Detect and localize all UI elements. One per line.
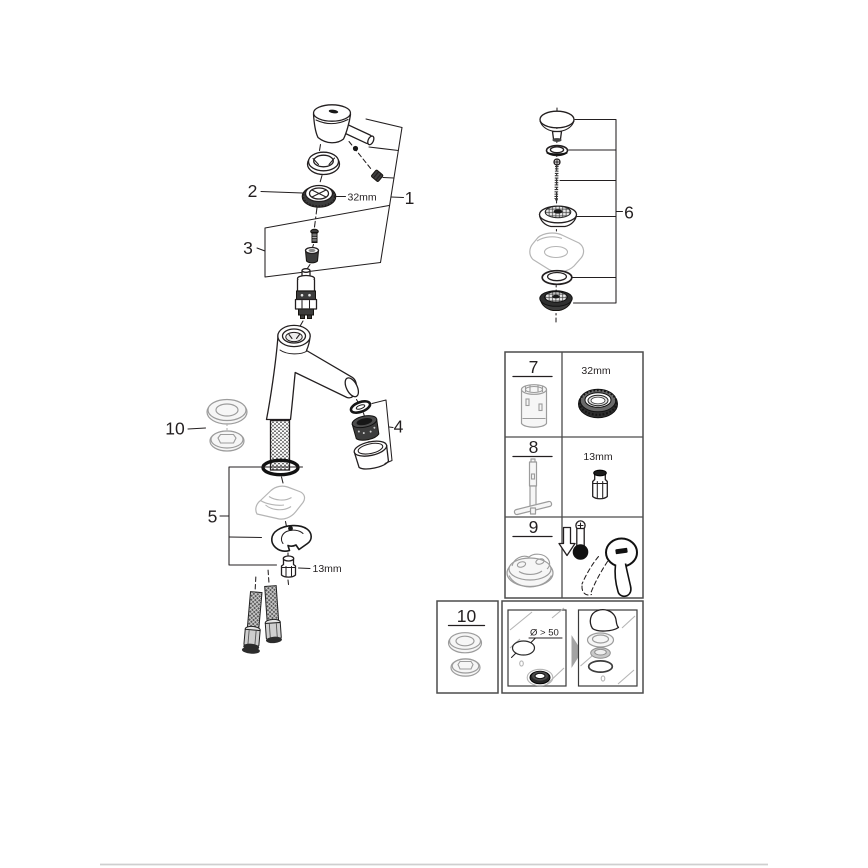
cartridge-socket-tool [522,385,547,428]
aerator-o-ring [349,399,371,415]
aerator-insert [351,414,380,443]
callout-6-label: 6 [624,203,634,223]
callout-3-label: 3 [243,238,253,258]
install-after-panel [579,610,638,686]
install-before-panel: Ø > 50 [508,608,566,686]
hole-dimension-label: Ø > 50 [530,628,559,639]
service-parts-table: 7 32mm 8 [505,352,643,598]
drain-plug [540,111,574,142]
drain-seal-ring [542,271,572,285]
base-gaskets [207,400,247,452]
row-7-label: 7 [529,357,539,377]
callout-2-label: 2 [248,181,258,201]
cartridge [296,269,317,328]
row-8-label: 8 [529,437,539,457]
row-9-label: 9 [529,517,539,537]
seal-kit-label: 10 [457,606,477,626]
dimension-32mm-label: 32mm [348,192,377,204]
callout-2: 2 [248,181,303,201]
callout-5-label: 5 [208,507,218,527]
mounting-clamp [272,526,311,552]
supply-hose-right [261,570,282,644]
cartridge-cap [306,248,319,270]
drain-assembly: 6 [530,108,634,322]
sink-ghost [256,486,305,519]
dimension-13mm: 13mm [299,563,342,575]
lever-handle [314,105,376,146]
row-7-size-label: 32mm [581,365,610,377]
ring-nut-32mm [302,176,336,208]
mounting-nut-part [593,470,608,499]
drain-sink-ghost [530,233,584,272]
drain-rod [554,159,560,203]
dimension-13mm-label: 13mm [313,563,342,575]
row-8-size-label: 13mm [583,451,612,463]
aerator: 4 [349,399,403,471]
drain-bottom-flange [540,291,572,311]
callout-1-label: 1 [405,188,415,208]
install-instruction-box: Ø > 50 [502,601,643,693]
aerator-housing [353,439,391,472]
supply-hose-left [242,576,267,654]
cartridge-screw [311,208,319,248]
drain-plug-ring [547,146,568,156]
callout-10: 10 [165,419,205,439]
seal-kit-box: 10 [437,601,498,693]
callout-4-label: 4 [394,417,404,437]
callout-10-label: 10 [165,419,185,439]
handle-base-ring [308,145,340,175]
ring-nut-part [579,389,618,418]
faucet-parts-diagram-page: 2 32mm 3 [0,0,868,868]
faucet-body [267,325,362,419]
mounting-nut-13mm [282,556,296,577]
drain-flange [540,206,577,226]
exploded-parts-drawing: 2 32mm 3 [0,0,868,868]
dimension-32mm: 32mm [336,192,377,204]
